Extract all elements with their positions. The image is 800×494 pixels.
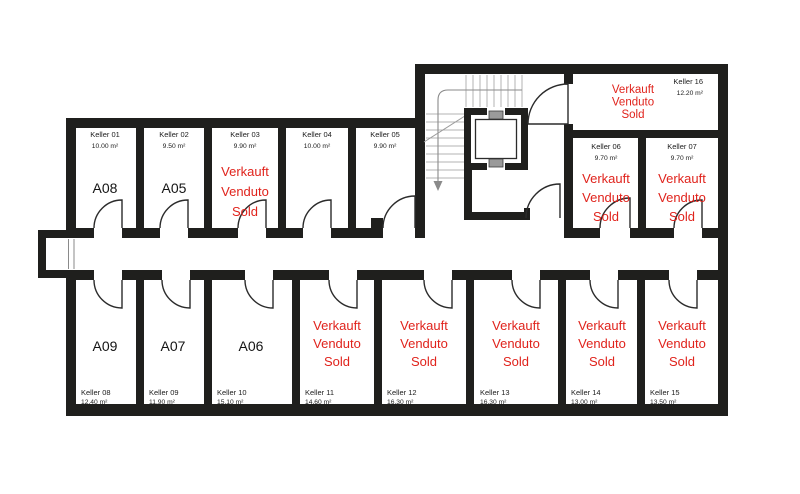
stair-treads-lower-flight: [426, 114, 464, 178]
room-name-label: Keller 16: [673, 77, 703, 86]
room-label-keller-07: Keller 079.70 m²VerkauftVendutoSold: [658, 142, 706, 224]
room-name-label: Keller 13: [480, 388, 510, 397]
room-sold-label: Sold: [411, 354, 437, 369]
room-sold-label: Sold: [669, 209, 695, 224]
room-area-label: 9.90 m²: [234, 143, 257, 150]
room-sold-label: Verkauft: [400, 318, 448, 333]
room-name-label: Keller 08: [81, 388, 111, 397]
room-area-label: 9.70 m²: [671, 155, 694, 162]
room-label-keller-05: Keller 059.90 m²: [370, 130, 400, 150]
room-sold-label: Venduto: [400, 336, 448, 351]
room-unit-label: A06: [239, 338, 264, 354]
room-name-label: Keller 05: [370, 130, 400, 139]
room-sold-label: Sold: [589, 354, 615, 369]
door-keller-14: [590, 280, 618, 308]
room-sold-label: Sold: [324, 354, 350, 369]
room-area-label: 9.50 m²: [163, 143, 186, 150]
door-keller-12: [424, 280, 452, 308]
room-label-keller-02: Keller 029.50 m²A05: [159, 130, 189, 196]
room-unit-label: A08: [93, 180, 118, 196]
room-sold-label: Verkauft: [658, 318, 706, 333]
room-name-label: Keller 07: [667, 142, 697, 151]
room-name-label: Keller 06: [591, 142, 621, 151]
door-keller-09: [162, 280, 190, 308]
room-label-keller-11: Keller 1114.60 m²VerkauftVendutoSold: [305, 318, 361, 406]
elevator: [464, 108, 528, 170]
room-sold-label: Venduto: [313, 336, 361, 351]
door-stair-lobby: [526, 184, 560, 218]
room-sold-label: Venduto: [582, 190, 630, 205]
room-sold-label: Sold: [621, 109, 644, 121]
room-sold-label: Verkauft: [582, 171, 630, 186]
stair-direction-arrow: [434, 181, 443, 191]
room-name-label: Keller 03: [230, 130, 260, 139]
room-name-label: Keller 09: [149, 388, 179, 397]
room-sold-label: Sold: [593, 209, 619, 224]
room-label-keller-04: Keller 0410.00 m²: [302, 130, 332, 150]
room-name-label: Keller 10: [217, 388, 247, 397]
room-area-label: 14.60 m²: [305, 399, 332, 406]
door-keller-02: [160, 200, 188, 228]
room-area-label: 16.30 m²: [387, 399, 414, 406]
room-area-label: 10.00 m²: [304, 143, 331, 150]
corridor-end-window: [69, 239, 75, 269]
room-name-label: Keller 12: [387, 388, 417, 397]
room-area-label: 13.00 m²: [571, 399, 598, 406]
door-keller-16: [528, 84, 568, 124]
room-area-label: 12.20 m²: [677, 90, 704, 97]
room-name-label: Keller 01: [90, 130, 120, 139]
room-name-label: Keller 15: [650, 388, 680, 397]
room-label-keller-15: Keller 1513.50 m²VerkauftVendutoSold: [650, 318, 706, 406]
door-keller-10: [245, 280, 273, 308]
room-unit-label: A07: [161, 338, 186, 354]
stair-treads-upper-flight: [466, 75, 522, 107]
room-label-keller-10: Keller 1015.10 m²A06: [217, 338, 264, 406]
room-label-keller-06: Keller 069.70 m²VerkauftVendutoSold: [582, 142, 630, 224]
room-area-label: 9.90 m²: [374, 143, 397, 150]
room-label-keller-03: Keller 039.90 m²VerkauftVendutoSold: [221, 130, 269, 219]
room-area-label: 12.40 m²: [81, 399, 108, 406]
room-area-label: 10.00 m²: [92, 143, 119, 150]
room-sold-label: Verkauft: [221, 164, 269, 179]
room-label-keller-16: Keller 1612.20 m²VerkauftVendutoSold: [612, 77, 704, 121]
room-unit-label: A09: [93, 338, 118, 354]
elevator-buffer-top: [489, 111, 503, 119]
room-area-label: 15.10 m²: [217, 399, 244, 406]
room-area-label: 9.70 m²: [595, 155, 618, 162]
room-sold-label: Venduto: [492, 336, 540, 351]
elevator-car: [476, 120, 517, 159]
room-label-keller-09: Keller 0911.90 m²A07: [149, 338, 186, 406]
room-sold-label: Venduto: [578, 336, 626, 351]
room-sold-label: Venduto: [221, 184, 269, 199]
elevator-buffer-bottom: [489, 159, 503, 167]
room-name-label: Keller 04: [302, 130, 332, 139]
room-sold-label: Verkauft: [658, 171, 706, 186]
room-label-keller-08: Keller 0812.40 m²A09: [81, 338, 118, 406]
room-name-label: Keller 02: [159, 130, 189, 139]
room-sold-label: Venduto: [658, 336, 706, 351]
room-label-keller-01: Keller 0110.00 m²A08: [90, 130, 120, 196]
room-sold-label: Sold: [503, 354, 529, 369]
room-name-label: Keller 14: [571, 388, 601, 397]
room-area-label: 13.50 m²: [650, 399, 677, 406]
room-label-keller-14: Keller 1413.00 m²VerkauftVendutoSold: [571, 318, 626, 406]
room-sold-label: Sold: [232, 204, 258, 219]
door-keller-01: [94, 200, 122, 228]
room-area-label: 11.90 m²: [149, 399, 176, 406]
room-sold-label: Sold: [669, 354, 695, 369]
floor-plan-page: Keller 0110.00 m²A08Keller 029.50 m²A05K…: [0, 0, 800, 489]
door-keller-11: [329, 280, 357, 308]
door-keller-04: [303, 200, 331, 228]
room-sold-label: Verkauft: [492, 318, 540, 333]
room-sold-label: Verkauft: [313, 318, 361, 333]
basement-floor-plan: Keller 0110.00 m²A08Keller 029.50 m²A05K…: [0, 0, 800, 489]
door-keller-15: [669, 280, 697, 308]
room-sold-label: Verkauft: [612, 84, 655, 96]
room-sold-label: Venduto: [612, 97, 654, 109]
room-area-label: 16.30 m²: [480, 399, 507, 406]
room-name-label: Keller 11: [305, 388, 334, 397]
door-keller-05: [383, 196, 415, 228]
room-sold-label: Verkauft: [578, 318, 626, 333]
door-keller-13: [512, 280, 540, 308]
room-label-keller-13: Keller 1316.30 m²VerkauftVendutoSold: [480, 318, 540, 406]
room-sold-label: Venduto: [658, 190, 706, 205]
room-label-keller-12: Keller 1216.30 m²VerkauftVendutoSold: [387, 318, 448, 406]
door-keller-08: [94, 280, 122, 308]
room-unit-label: A05: [162, 180, 187, 196]
